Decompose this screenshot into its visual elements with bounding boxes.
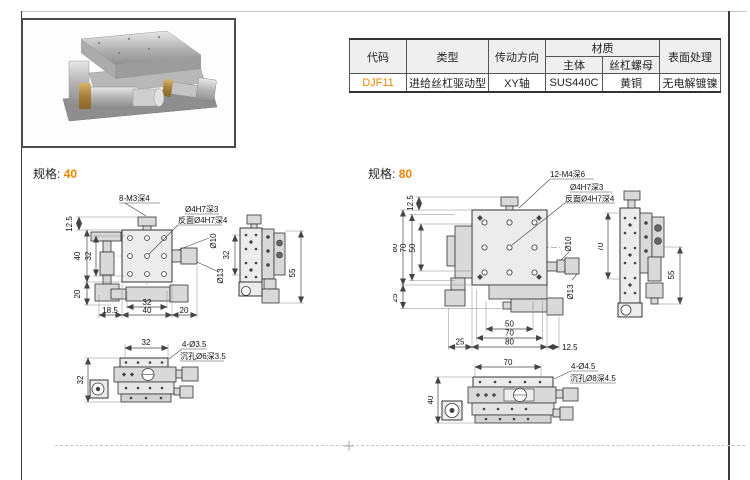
col-header-type: 类型 [407, 39, 489, 74]
cell-surface: 无电解镀镍 [660, 74, 721, 93]
dia-knob: Ø13 [566, 284, 575, 300]
col-header-material-nut: 丝杠螺母 [603, 57, 660, 74]
spec-table: 代码 类型 传动方向 材质 表面处理 主体 丝杠螺母 DJF11 进给丝杠驱动型… [349, 38, 721, 93]
dim-width: 80 [505, 338, 514, 347]
dim-width: 32 [142, 338, 151, 347]
col-header-surface: 表面处理 [660, 39, 721, 74]
col-header-material: 材质 [546, 39, 660, 57]
catalog-page: 代码 类型 传动方向 材质 表面处理 主体 丝杠螺母 DJF11 进给丝杠驱动型… [0, 0, 750, 480]
dim-top-offset: 12.5 [65, 216, 74, 232]
cell-code: DJF11 [350, 74, 407, 93]
drawing-spec80-side: 70 55 [598, 183, 695, 333]
table-row: DJF11 进给丝杠驱动型 XY轴 SUS440C 黄铜 无电解镀镍 [350, 74, 721, 93]
dim-bottom-offset: 20 [73, 289, 82, 298]
dim-height: 55 [288, 268, 297, 277]
callout-thread: 8-M3深4 [119, 194, 150, 203]
dim-height: 32 [76, 375, 85, 384]
callout-thread: 12-M4深6 [550, 170, 586, 179]
cell-material-nut: 黄铜 [603, 74, 660, 93]
drawing-spec80-bottom: 70 40 4-Ø4.5 沉孔Ø8深4.5 [428, 358, 653, 436]
drawing-spec40-side: 32 55 [220, 193, 316, 328]
cell-type: 进给丝杠驱动型 [407, 74, 489, 93]
callout-hole: Ø4H7深3 [185, 205, 219, 214]
spec-label-text: 规格: [33, 167, 60, 181]
dim-hole-span-h: 70 [505, 329, 514, 338]
dia-shaft: Ø10 [209, 233, 218, 249]
dim-left-offset: 25 [456, 338, 465, 347]
spec-size-value: 40 [64, 167, 77, 181]
dim-span: 70 [598, 242, 605, 251]
dim-height: 55 [667, 270, 676, 279]
dim-height: 40 [428, 395, 435, 404]
cell-material-body: SUS440C [546, 74, 603, 93]
dim-hole-inner-v: 50 [408, 243, 417, 252]
dim-hole-span-v: 32 [84, 251, 93, 260]
dim-hole-span-v: 70 [399, 243, 408, 252]
col-header-material-body: 主体 [546, 57, 603, 74]
callout-cbore: 沉孔Ø8深4.5 [570, 374, 616, 383]
dim-right-offset: 12.5 [562, 343, 578, 352]
product-photo [21, 18, 236, 148]
dim-right-offset: 20 [180, 306, 189, 315]
callout-holes: 4-Ø4.5 [571, 362, 596, 371]
page-border-right [728, 11, 730, 480]
product-photo-illustration [29, 25, 229, 141]
dim-bottom-offset: 25 [393, 293, 399, 302]
spec-label-text: 规格: [368, 167, 395, 181]
col-header-direction: 传动方向 [489, 39, 546, 74]
dim-width: 40 [143, 306, 152, 315]
dia-shaft: Ø10 [564, 236, 573, 252]
page-border-top [21, 11, 746, 12]
dim-width: 70 [504, 358, 513, 367]
col-header-code: 代码 [350, 39, 407, 74]
dim-top-offset: 12.5 [406, 195, 415, 211]
register-mark-icon [344, 441, 354, 451]
dim-hole-inner-h: 50 [505, 320, 514, 329]
dim-height: 40 [73, 251, 82, 260]
callout-cbore: 沉孔Ø6深3.5 [180, 352, 226, 361]
dim-left-offset: 18.5 [102, 306, 118, 315]
dim-span: 32 [222, 250, 231, 259]
callout-holes: 4-Ø3.5 [182, 340, 207, 349]
section-divider [55, 445, 745, 446]
cell-direction: XY轴 [489, 74, 546, 93]
spec-40-label: 规格: 40 [33, 165, 77, 182]
drawing-spec40-bottom: 32 32 4-Ø3.5 沉孔Ø6深3.5 [76, 336, 241, 420]
